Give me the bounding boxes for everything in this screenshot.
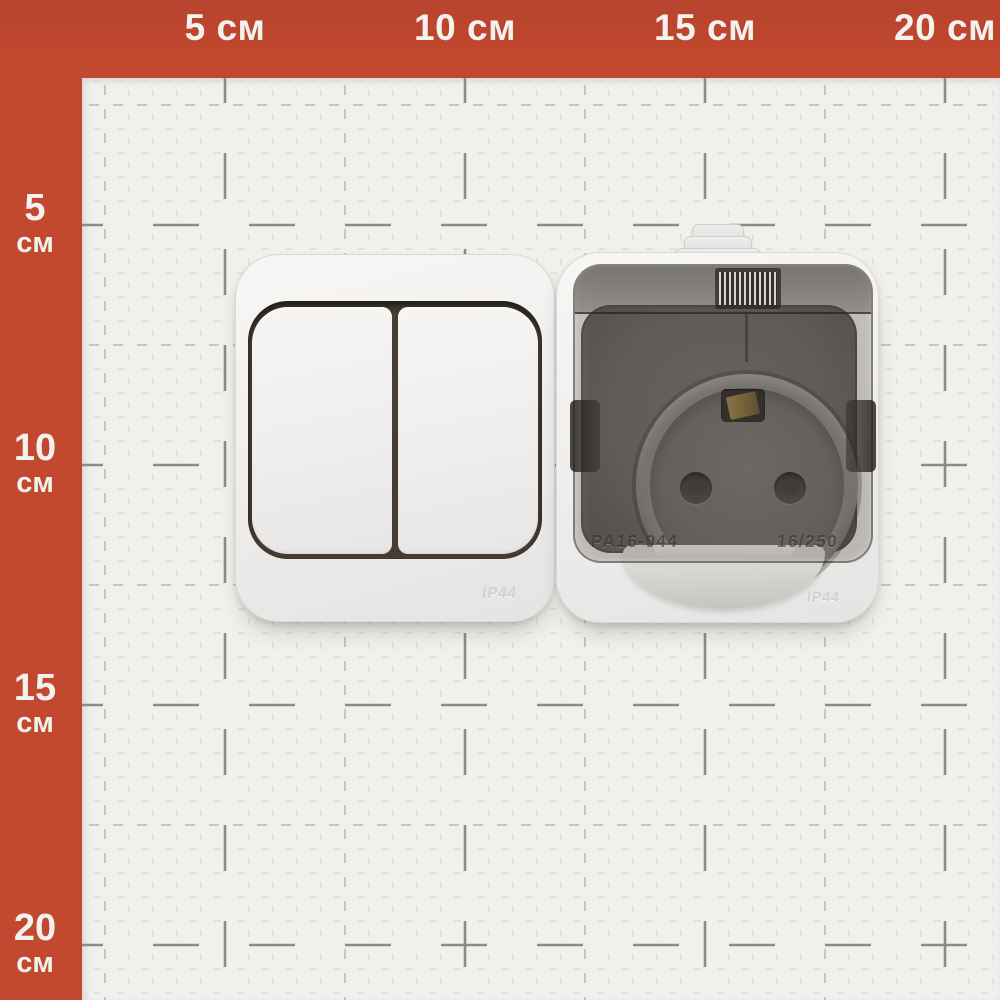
- weatherproof-socket: PA16-044 16/250 IP44: [556, 252, 879, 623]
- cover-center-seam: [745, 314, 748, 362]
- product-photo-scene: 5 см 10 см 15 см 20 см 5 см 10 см 15 см …: [0, 0, 1000, 1000]
- ruler-left-number: 15: [0, 671, 70, 705]
- ruler-left-number: 20: [0, 911, 70, 945]
- cover-hinge-bar: [575, 266, 871, 314]
- switch-rocker-right: [398, 307, 538, 554]
- ruler-left-unit: см: [0, 465, 70, 501]
- ruler-left-label-20cm: 20 см: [0, 911, 70, 981]
- cover-latch-left: [570, 400, 600, 472]
- cover-grip-ribs: [719, 272, 777, 305]
- ruler-top-label-10cm: 10 см: [414, 9, 516, 46]
- double-rocker-switch: IP44: [235, 254, 555, 622]
- cover-grip: [715, 268, 781, 309]
- socket-ip-rating-label: IP44: [806, 589, 841, 605]
- ruler-top-label-5cm: 5 см: [185, 9, 266, 46]
- ruler-left-label-15cm: 15 см: [0, 671, 70, 741]
- switch-rocker-slot: [248, 301, 542, 559]
- cover-latch-right: [846, 400, 876, 472]
- transparent-hinged-cover: PA16-044 16/250: [573, 264, 873, 563]
- ruler-left-number: 5: [0, 191, 70, 225]
- socket-model-label: PA16-044: [590, 532, 679, 552]
- ruler-left-number: 10: [0, 431, 70, 465]
- socket-rating-label: 16/250: [776, 532, 838, 552]
- ruler-top-label-15cm: 15 см: [654, 9, 756, 46]
- switch-rocker-left: [252, 307, 392, 554]
- ruler-top-label-20cm: 20 см: [894, 9, 996, 46]
- ruler-left-unit: см: [0, 225, 70, 261]
- switch-ip-rating-label: IP44: [481, 585, 518, 602]
- ruler-left-label-5cm: 5 см: [0, 191, 70, 261]
- ruler-left-unit: см: [0, 945, 70, 981]
- ruler-left-unit: см: [0, 705, 70, 741]
- ruler-left-label-10cm: 10 см: [0, 431, 70, 501]
